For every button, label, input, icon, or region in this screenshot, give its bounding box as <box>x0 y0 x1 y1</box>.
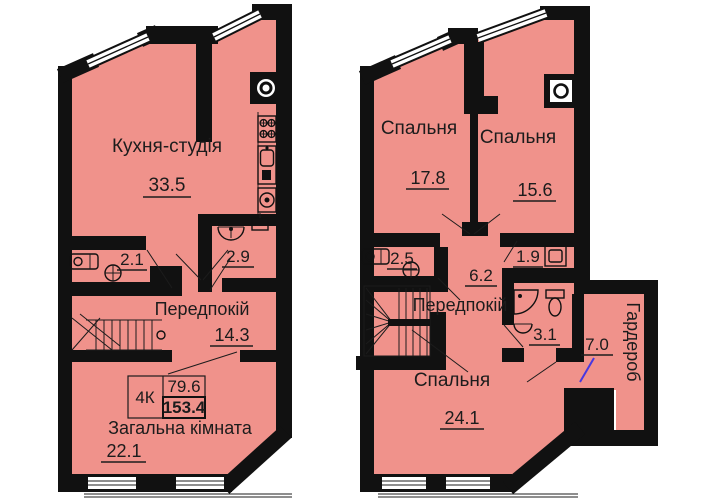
bathroom-1-area: 2.5 <box>390 249 414 268</box>
kitchen-area: 33.5 <box>149 175 186 196</box>
kitchen-label: Кухня-студія <box>112 136 222 157</box>
bedroom-2-label: Спальня <box>480 127 556 148</box>
right-bottom-windows <box>378 477 578 497</box>
total-area: 153.4 <box>163 398 206 417</box>
bedroom-1-label: Спальня <box>381 118 457 139</box>
wardrobe-area: 7.0 <box>585 335 609 354</box>
right-floor-plan: Спальня 17.8 Спальня 15.6 2.5 1.9 6.2 Пе… <box>356 6 658 497</box>
ventilation-shaft-icon <box>250 72 282 104</box>
bathroom-area: 2.9 <box>226 247 250 266</box>
living-room-area: 22.1 <box>106 441 141 461</box>
living-area-total: 79.6 <box>167 377 200 396</box>
hallway-area: 14.3 <box>214 325 249 345</box>
bedroom-2-area: 15.6 <box>517 180 552 200</box>
hallway-label: Передпокій <box>155 299 250 319</box>
left-bottom-windows <box>84 477 292 497</box>
left-floor-plan: Кухня-студія 33.5 2.1 2.9 Передпокій 14.… <box>58 4 292 497</box>
floor-plan-drawing: Кухня-студія 33.5 2.1 2.9 Передпокій 14.… <box>0 0 708 500</box>
floor-plan-canvas: Кухня-студія 33.5 2.1 2.9 Передпокій 14.… <box>0 0 708 500</box>
bedroom-1-area: 17.8 <box>410 168 445 188</box>
bathroom-2-area: 3.1 <box>533 325 557 344</box>
corridor-area: 6.2 <box>469 266 493 285</box>
hallway-label-2: Передпокій <box>413 295 508 315</box>
wc-area: 2.1 <box>120 250 144 269</box>
ventilation-shaft-icon-2 <box>544 74 578 108</box>
bedroom-3-label: Спальня <box>414 370 490 391</box>
living-room-label: Загальна кімната <box>108 418 253 438</box>
wardrobe-label: Гардероб <box>623 302 643 381</box>
bedroom-3-area: 24.1 <box>444 408 479 428</box>
apartment-type: 4К <box>135 388 154 407</box>
laundry-area: 1.9 <box>516 247 540 266</box>
toilet-icon <box>105 265 121 281</box>
